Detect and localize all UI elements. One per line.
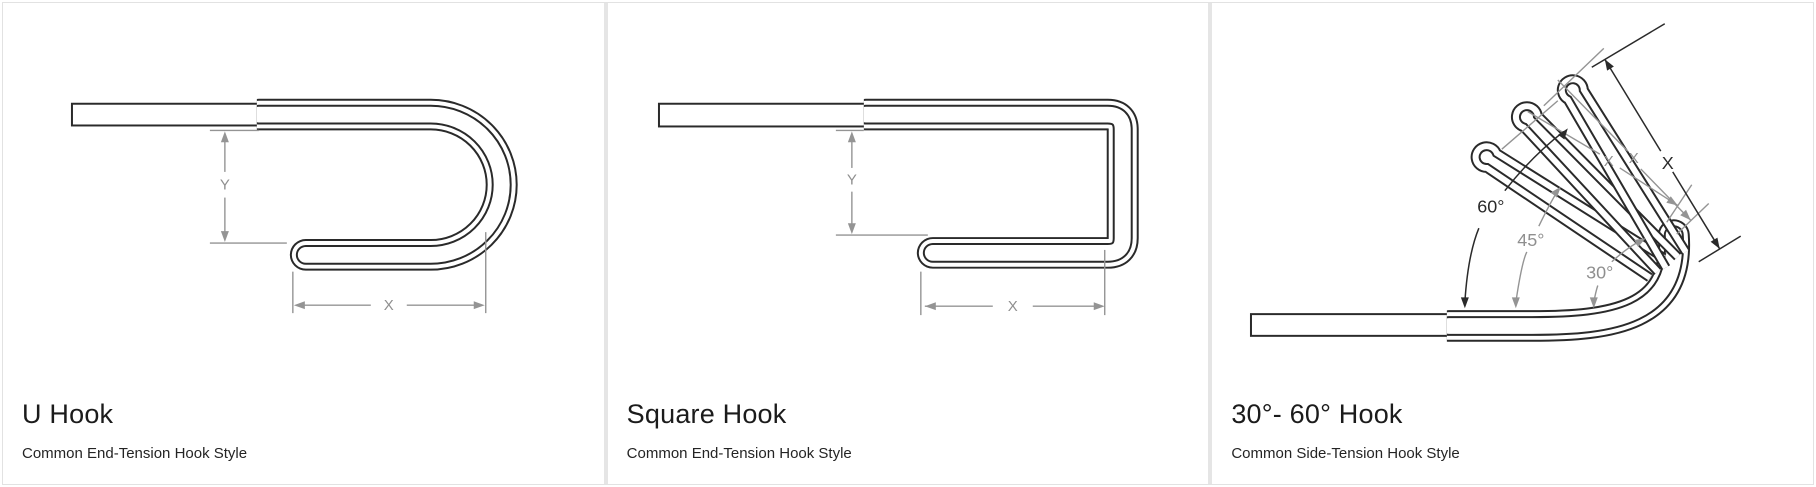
dimension-label-x: X — [1662, 153, 1674, 173]
u-hook-card: Y X U Hook Common End-Tension Hook Style — [3, 3, 604, 484]
wire-body — [72, 104, 262, 126]
angle-hook-card: X X X — [1212, 3, 1813, 484]
y-dimension: Y — [836, 130, 928, 235]
hook-tube — [259, 115, 502, 255]
dimension-label-x: X — [384, 298, 394, 314]
hook-subtitle: Common Side-Tension Hook Style — [1231, 445, 1459, 462]
y-dimension: Y — [210, 130, 287, 243]
ghost-dim-label-30: X — [1604, 154, 1614, 170]
hook-title: Square Hook — [627, 399, 787, 430]
ghost-dim-label-45: X — [1629, 151, 1639, 167]
hook-tube — [866, 115, 1123, 253]
wire-body — [659, 104, 869, 127]
angle-label-45: 45° — [1518, 230, 1545, 250]
dimension-label-x: X — [1007, 299, 1017, 315]
dimension-label-y: Y — [220, 178, 230, 194]
hook-styles-board: Y X U Hook Common End-Tension Hook Style — [2, 2, 1814, 485]
hook-title: U Hook — [22, 399, 113, 430]
angle-label-30: 30° — [1587, 263, 1614, 283]
hook-subtitle: Common End-Tension Hook Style — [627, 445, 852, 462]
angle-label-60: 60° — [1478, 196, 1505, 216]
dimension-label-y: Y — [847, 173, 857, 189]
hook-subtitle: Common End-Tension Hook Style — [22, 445, 247, 462]
square-hook-card: Y X Square Hook Common End-Tension Hook … — [608, 3, 1209, 484]
wire-body — [1251, 314, 1453, 336]
hook-title: 30°- 60° Hook — [1231, 399, 1402, 430]
